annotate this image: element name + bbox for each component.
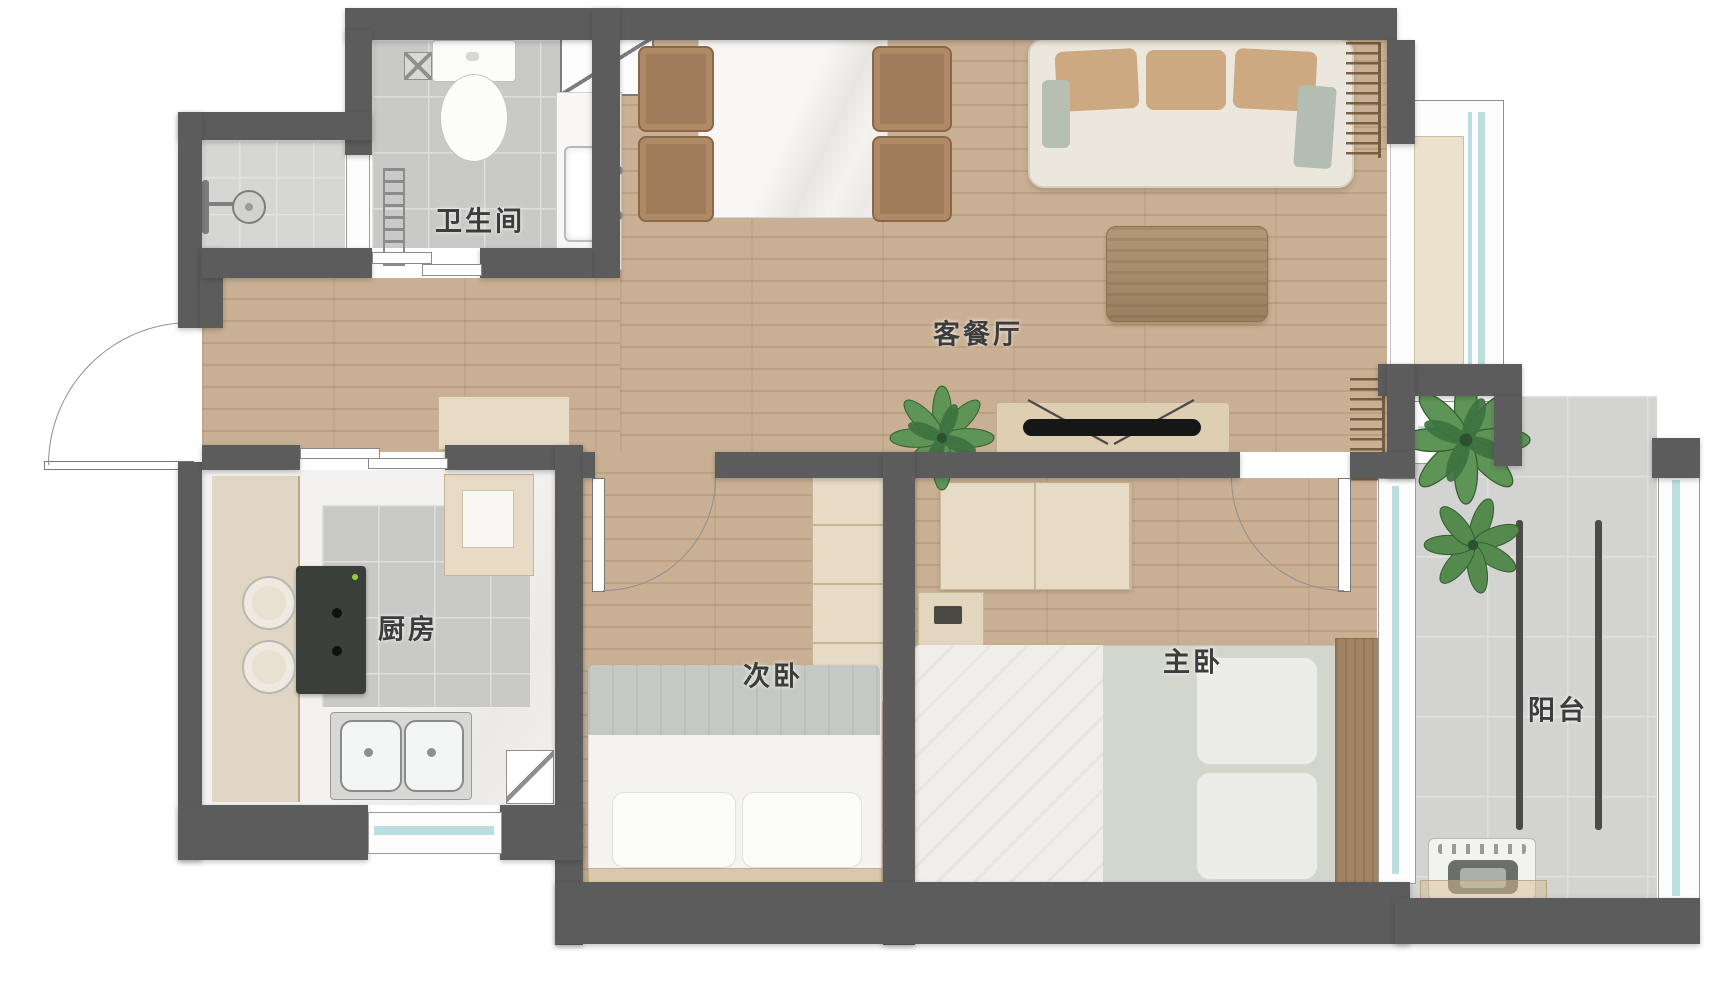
tv-icon: [1023, 419, 1201, 436]
toilet-icon: [440, 74, 508, 162]
dining-table-icon: [698, 28, 888, 218]
wall-bedroom-top-c: [1350, 452, 1415, 478]
dining-chair-icon: [872, 136, 952, 222]
cooktop-knob: [332, 608, 342, 618]
bed-blanket: [588, 665, 880, 735]
wall-kitchen-left: [178, 462, 202, 860]
headboard: [1335, 638, 1379, 892]
wall-kitchen-bedroom: [555, 445, 583, 945]
radiator-icon: [1346, 42, 1381, 158]
wall-balcony-stub: [1494, 396, 1522, 466]
pillow-icon: [612, 792, 736, 868]
room-label-bathroom: 卫生间: [435, 200, 525, 239]
floor-plan: 卫生间 客餐厅 厨房 次卧 主卧 阳台: [0, 0, 1724, 996]
bench-tray: [934, 606, 962, 624]
room-label-kitchen: 厨房: [378, 608, 438, 647]
bed-blanket: [915, 645, 1103, 885]
toilet-flush-button: [466, 52, 479, 61]
sliding-door-icon: [422, 264, 482, 276]
cooktop-knob: [332, 646, 342, 656]
wall-living-right-top: [1387, 40, 1415, 144]
wall-balcony-bottom: [1395, 898, 1700, 944]
room-label-second-bedroom: 次卧: [743, 655, 803, 694]
shower-floor: [202, 140, 345, 248]
floor-drain-icon: [404, 52, 432, 80]
shower-head-icon: [232, 190, 266, 224]
wall-kitchen-top-l: [202, 445, 300, 470]
wall-bedroom-top-b: [715, 452, 1240, 478]
pillow-icon: [742, 792, 862, 868]
wall-kitchen-bottom-r: [500, 805, 583, 860]
room-label-master-bedroom: 主卧: [1163, 641, 1223, 680]
sliding-door-icon: [368, 458, 448, 469]
sofa-throw-pillow: [1042, 80, 1070, 148]
wall-bath-right: [592, 8, 620, 278]
wall-top: [345, 8, 1397, 40]
coffee-table-icon: [1106, 226, 1268, 322]
pillow-icon: [1196, 772, 1318, 880]
shower-glass-panel: [346, 152, 370, 250]
wall-balcony-ne: [1652, 438, 1700, 478]
upper-cabinet-overlay: [212, 476, 300, 802]
bay-window-glass: [1468, 112, 1472, 388]
wall-bedroom-top-a: [583, 452, 595, 478]
drying-rail-icon: [1595, 520, 1602, 830]
wall-bath-bottom-r: [480, 248, 592, 278]
sink-drain: [364, 748, 373, 757]
cooktop-indicator: [352, 574, 358, 580]
wall-bedrooms-separator: [883, 452, 915, 945]
sink-drain: [427, 748, 436, 757]
bay-window-sill: [1414, 136, 1464, 368]
wall-bottom-main: [555, 882, 1410, 944]
burner-ring: [242, 576, 296, 630]
burner-ring: [242, 640, 296, 694]
shower-valve: [202, 180, 209, 234]
window-glass: [374, 826, 494, 835]
bay-window-glass: [1478, 112, 1485, 388]
entry-door-swing: [48, 322, 191, 465]
tall-cabinet-door: [462, 490, 514, 548]
living-bay-opening: [1390, 142, 1416, 368]
wall-kitchen-bottom-l: [178, 805, 368, 860]
sofa-back-cushion: [1146, 50, 1226, 110]
wall-bath-bottom-l: [202, 248, 372, 278]
window-glass: [1672, 480, 1680, 896]
wall-entry-left: [178, 112, 202, 328]
cooktop-icon: [296, 566, 366, 694]
corner-cabinet-icon: [506, 750, 554, 804]
room-label-living-dining: 客餐厅: [933, 313, 1023, 352]
washer-controls: [1438, 844, 1526, 854]
wall-shower-top: [178, 112, 372, 140]
dresser-icon: [940, 482, 1132, 590]
hallway-console-cabinet: [438, 396, 570, 450]
dining-chair-icon: [638, 46, 714, 132]
sofa-throw-blanket: [1293, 85, 1337, 169]
dining-chair-icon: [638, 136, 714, 222]
sliding-door-icon: [372, 252, 432, 264]
sliding-glass-door: [1392, 486, 1399, 874]
room-label-balcony: 阳台: [1528, 689, 1588, 728]
dining-chair-icon: [872, 46, 952, 132]
